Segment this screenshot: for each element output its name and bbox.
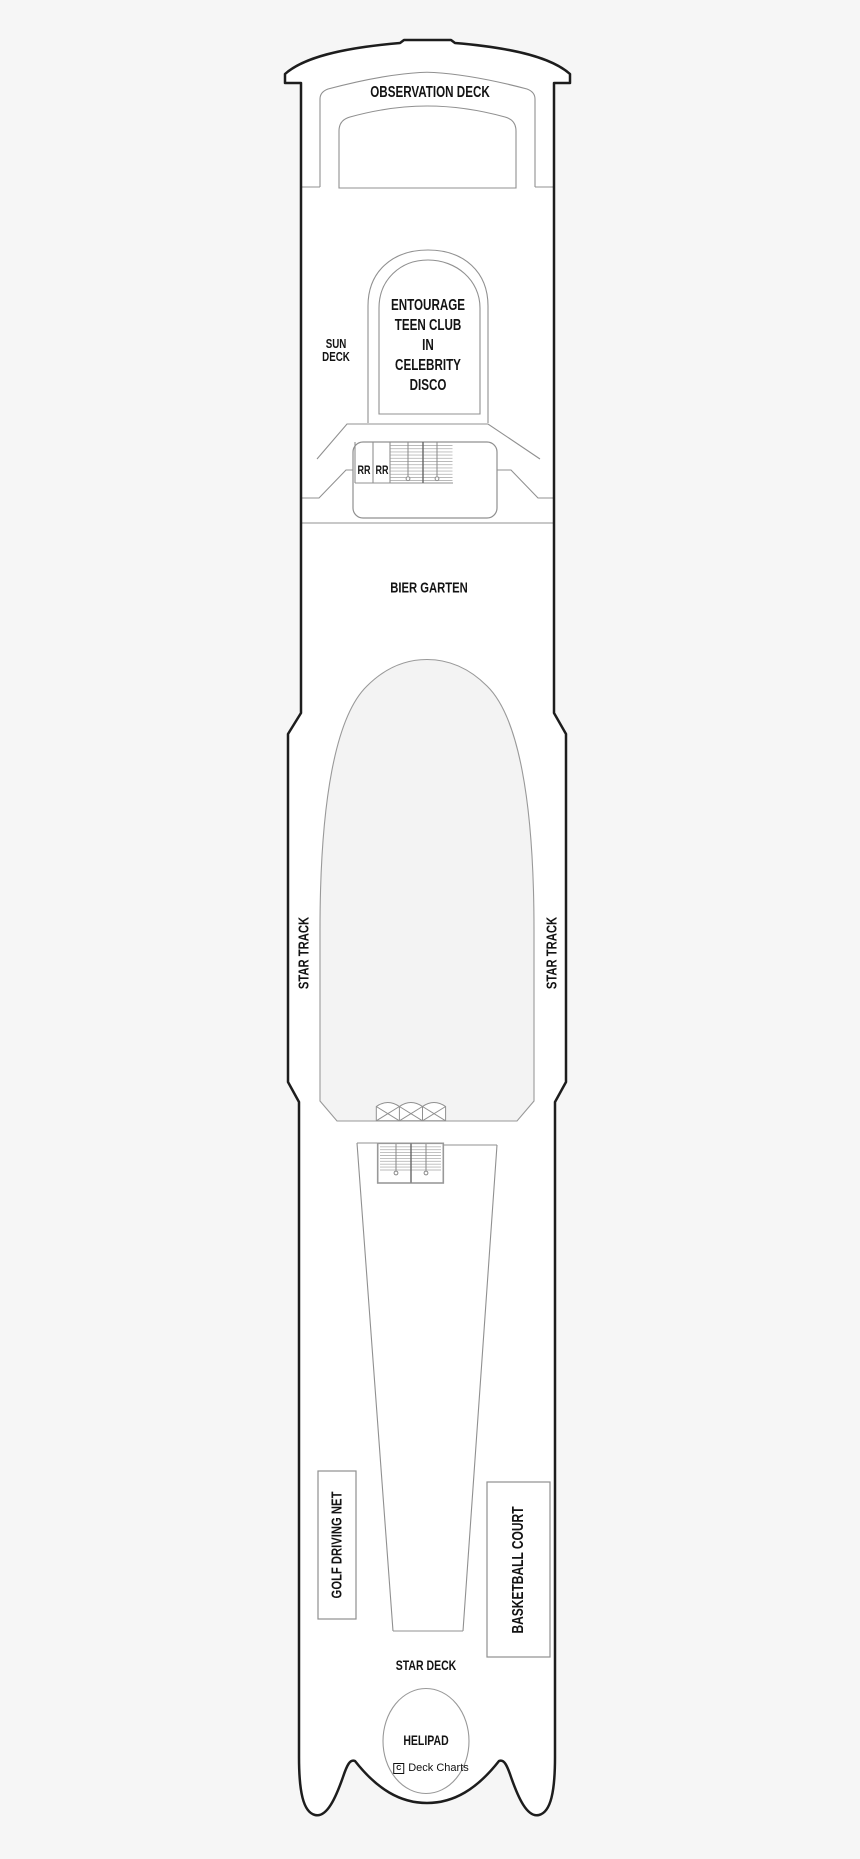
label-restroom-left: RR <box>357 464 370 478</box>
label-helipad: HELIPAD <box>403 1732 448 1748</box>
label-basketball-court: BASKETBALL COURT <box>510 1506 528 1633</box>
label-star-deck: STAR DECK <box>396 1657 456 1673</box>
label-star-track-starboard: STAR TRACK <box>543 917 560 989</box>
deckcharts-logo: C Deck Charts <box>393 1762 469 1774</box>
label-teen-club: ENTOURAGE TEEN CLUB IN CELEBRITY DISCO <box>391 296 465 396</box>
label-sun-deck: SUN DECK <box>322 337 350 363</box>
label-restroom-right: RR <box>375 464 388 478</box>
label-observation-deck: OBSERVATION DECK <box>370 84 489 102</box>
vent-boxes <box>376 1103 445 1121</box>
deck-plan: OBSERVATION DECK SUN DECK ENTOURAGE TEEN… <box>0 0 860 1859</box>
stair-house-block <box>353 442 497 518</box>
pool-deck-area <box>320 660 534 1122</box>
deckcharts-logo-mark: C <box>393 1763 404 1774</box>
label-star-track-port: STAR TRACK <box>295 917 312 989</box>
label-golf-driving-net: GOLF DRIVING NET <box>328 1492 345 1599</box>
deckcharts-logo-text: Deck Charts <box>408 1762 469 1774</box>
deck-chart-page: { "canvas": { "width": 860, "height": 18… <box>0 0 860 1859</box>
label-bier-garten: BIER GARTEN <box>390 579 468 596</box>
ship-linework <box>0 0 860 1859</box>
